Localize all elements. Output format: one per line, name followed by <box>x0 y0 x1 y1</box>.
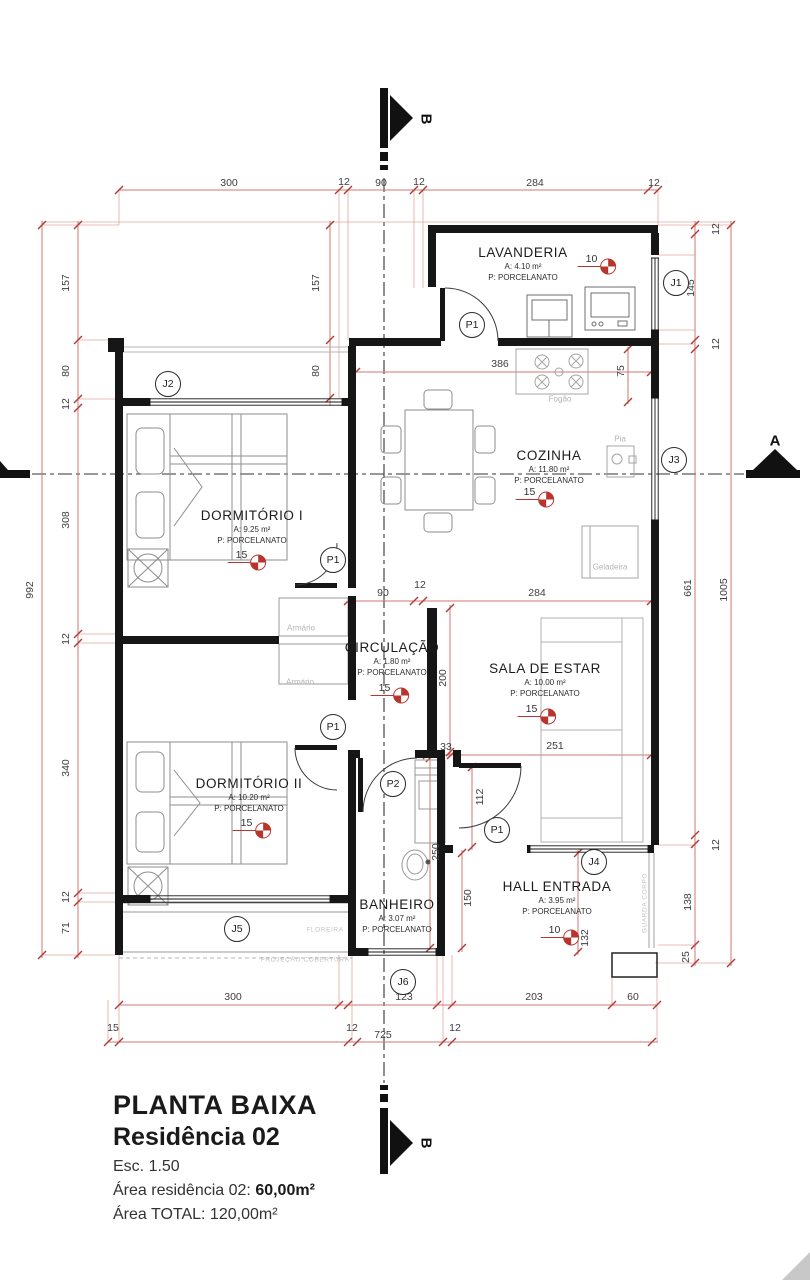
title-block: PLANTA BAIXA Residência 02 Esc. 1.50 Áre… <box>113 1090 317 1224</box>
dimension-label: 33 <box>440 741 452 753</box>
level-symbol-icon <box>254 822 271 839</box>
room-name: DORMITÓRIO I <box>201 508 303 523</box>
section-letter-b: B <box>418 114 435 125</box>
dimension-label: 157 <box>310 274 322 292</box>
room-label-cozinha: COZINHAA: 11.80 m²P: PORCELANATO <box>514 448 584 485</box>
room-name: CIRCULAÇÃO <box>345 640 440 655</box>
room-floor: P: PORCELANATO <box>478 273 568 282</box>
drawing-scale: Esc. 1.50 <box>113 1158 317 1176</box>
room-floor: P: PORCELANATO <box>201 536 303 545</box>
dimension-label: 203 <box>525 991 543 1003</box>
dimension-label: 284 <box>528 587 546 599</box>
area-residence-label: Área residência 02: <box>113 1182 251 1199</box>
dimension-label: 300 <box>224 991 242 1003</box>
dimension-label: 725 <box>374 1029 392 1041</box>
dimension-label: 150 <box>462 889 474 907</box>
page-corner-fold <box>782 1252 810 1280</box>
opening-label-j5: J5 <box>224 916 250 942</box>
dimension-label: 12 <box>60 398 72 410</box>
level-value: 15 <box>518 703 541 717</box>
dimension-label: 12 <box>346 1022 358 1034</box>
dimension-label: 80 <box>310 365 322 377</box>
level-marker: 15 <box>516 486 555 500</box>
level-marker: 15 <box>518 703 557 717</box>
level-value: 10 <box>578 253 601 267</box>
room-area: A: 1.80 m² <box>345 657 440 666</box>
room-name: HALL ENTRADA <box>503 879 612 894</box>
dimension-label: 112 <box>474 789 486 806</box>
room-label-sala-de-estar: SALA DE ESTARA: 10.00 m²P: PORCELANATO <box>489 661 601 698</box>
room-floor: P: PORCELANATO <box>196 804 303 813</box>
area-total: Área TOTAL: 120,00m² <box>113 1206 317 1224</box>
dimension-label: 300 <box>220 177 238 189</box>
level-symbol-icon <box>562 929 579 946</box>
room-area: A: 3.07 m² <box>359 914 434 923</box>
area-residence: Área residência 02: 60,00m² <box>113 1182 317 1200</box>
fixture-label: Geladeira <box>593 563 628 572</box>
dimension-label: 75 <box>615 365 627 377</box>
dimension-label: 12 <box>338 176 350 188</box>
dimension-label: 340 <box>60 759 72 777</box>
opening-label-p2: P2 <box>380 771 406 797</box>
room-name: DORMITÓRIO II <box>196 776 303 791</box>
room-label-dormitorio-1: DORMITÓRIO IA: 9.25 m²P: PORCELANATO <box>201 508 303 545</box>
fixture-label: FLOREIRA <box>306 927 343 934</box>
level-marker: 15 <box>233 817 272 831</box>
fixture-label: Armário <box>286 678 314 687</box>
opening-label-p1: P1 <box>459 312 485 338</box>
dimension-label: 308 <box>60 511 72 529</box>
room-label-dormitorio-2: DORMITÓRIO IIA: 10.20 m²P: PORCELANATO <box>196 776 303 813</box>
room-area: A: 10.20 m² <box>196 793 303 802</box>
fixture-label: PROJEÇÃO COBERTURA <box>260 957 349 964</box>
dimension-label: 992 <box>24 581 36 599</box>
fixture-label: Armário <box>287 624 315 633</box>
dimension-label: 12 <box>710 338 722 350</box>
dimension-label: 12 <box>648 177 660 189</box>
level-value: 15 <box>228 549 251 563</box>
room-label-circulacao: CIRCULAÇÃOA: 1.80 m²P: PORCELANATO <box>345 640 440 677</box>
opening-label-j3: J3 <box>661 447 687 473</box>
dimension-label: 12 <box>60 891 72 903</box>
room-name: LAVANDERIA <box>478 245 568 260</box>
level-value: 15 <box>233 817 256 831</box>
room-floor: P: PORCELANATO <box>489 689 601 698</box>
level-symbol-icon <box>249 554 266 571</box>
dimension-label: 15 <box>107 1022 119 1034</box>
level-marker: 10 <box>541 924 580 938</box>
dimension-label: 71 <box>60 922 72 934</box>
dimension-label: 25 <box>680 951 692 963</box>
dimension-label: 60 <box>627 991 639 1003</box>
dimension-label: 284 <box>526 177 544 189</box>
fixture-label: GUARDA CORPO <box>642 873 649 933</box>
dimension-label: 12 <box>60 633 72 645</box>
dimension-label: 12 <box>710 223 722 235</box>
section-letter-a: A <box>770 433 781 450</box>
opening-label-p1: P1 <box>320 547 346 573</box>
drawing-subtitle: Residência 02 <box>113 1123 317 1152</box>
dimension-label: 90 <box>375 177 387 189</box>
room-name: BANHEIRO <box>359 897 434 912</box>
room-floor: P: PORCELANATO <box>503 907 612 916</box>
level-symbol-icon <box>539 708 556 725</box>
dimension-label: 90 <box>377 587 389 599</box>
dimension-label: 12 <box>710 839 722 851</box>
room-area: A: 11.80 m² <box>514 465 584 474</box>
dimension-label: 12 <box>449 1022 461 1034</box>
dimension-label: 251 <box>546 740 564 752</box>
level-symbol-icon <box>392 687 409 704</box>
level-symbol-icon <box>599 258 616 275</box>
dimension-label: 138 <box>682 893 694 911</box>
dimension-label: 12 <box>413 176 425 188</box>
level-value: 15 <box>371 682 394 696</box>
opening-label-j2: J2 <box>155 371 181 397</box>
room-label-hall-entrada: HALL ENTRADAA: 3.95 m²P: PORCELANATO <box>503 879 612 916</box>
dimension-label: 80 <box>60 365 72 377</box>
room-area: A: 4.10 m² <box>478 262 568 271</box>
drawing-title: PLANTA BAIXA <box>113 1090 317 1121</box>
dimension-label: 250 <box>430 843 442 861</box>
room-floor: P: PORCELANATO <box>359 925 434 934</box>
room-floor: P: PORCELANATO <box>345 668 440 677</box>
section-letter-b: B <box>418 1138 435 1149</box>
room-floor: P: PORCELANATO <box>514 476 584 485</box>
fixture-label: Pia <box>614 435 626 444</box>
level-value: 10 <box>541 924 564 938</box>
dimension-label: 661 <box>682 579 694 597</box>
opening-label-j6: J6 <box>390 969 416 995</box>
dimension-label: 12 <box>414 579 426 591</box>
area-residence-value: 60,00m² <box>255 1182 315 1199</box>
room-label-lavanderia: LAVANDERIAA: 4.10 m²P: PORCELANATO <box>478 245 568 282</box>
dimension-label: 1005 <box>718 578 730 601</box>
room-area: A: 3.95 m² <box>503 896 612 905</box>
level-symbol-icon <box>537 491 554 508</box>
level-marker: 15 <box>371 682 410 696</box>
level-marker: 10 <box>578 253 617 267</box>
opening-label-j1: J1 <box>663 270 689 296</box>
level-value: 15 <box>516 486 539 500</box>
room-area: A: 9.25 m² <box>201 525 303 534</box>
dimension-label: 386 <box>491 358 509 370</box>
opening-label-p1: P1 <box>320 714 346 740</box>
dimension-label: 132 <box>579 929 591 947</box>
level-marker: 15 <box>228 549 267 563</box>
opening-label-p1: P1 <box>484 817 510 843</box>
annotation-layer: 3001290122841215780386759012284200332511… <box>0 0 810 1280</box>
fixture-label: Fogão <box>549 395 572 404</box>
opening-label-j4: J4 <box>581 849 607 875</box>
room-area: A: 10.00 m² <box>489 678 601 687</box>
room-name: SALA DE ESTAR <box>489 661 601 676</box>
room-label-banheiro: BANHEIROA: 3.07 m²P: PORCELANATO <box>359 897 434 934</box>
dimension-label: 157 <box>60 274 72 292</box>
room-name: COZINHA <box>514 448 584 463</box>
